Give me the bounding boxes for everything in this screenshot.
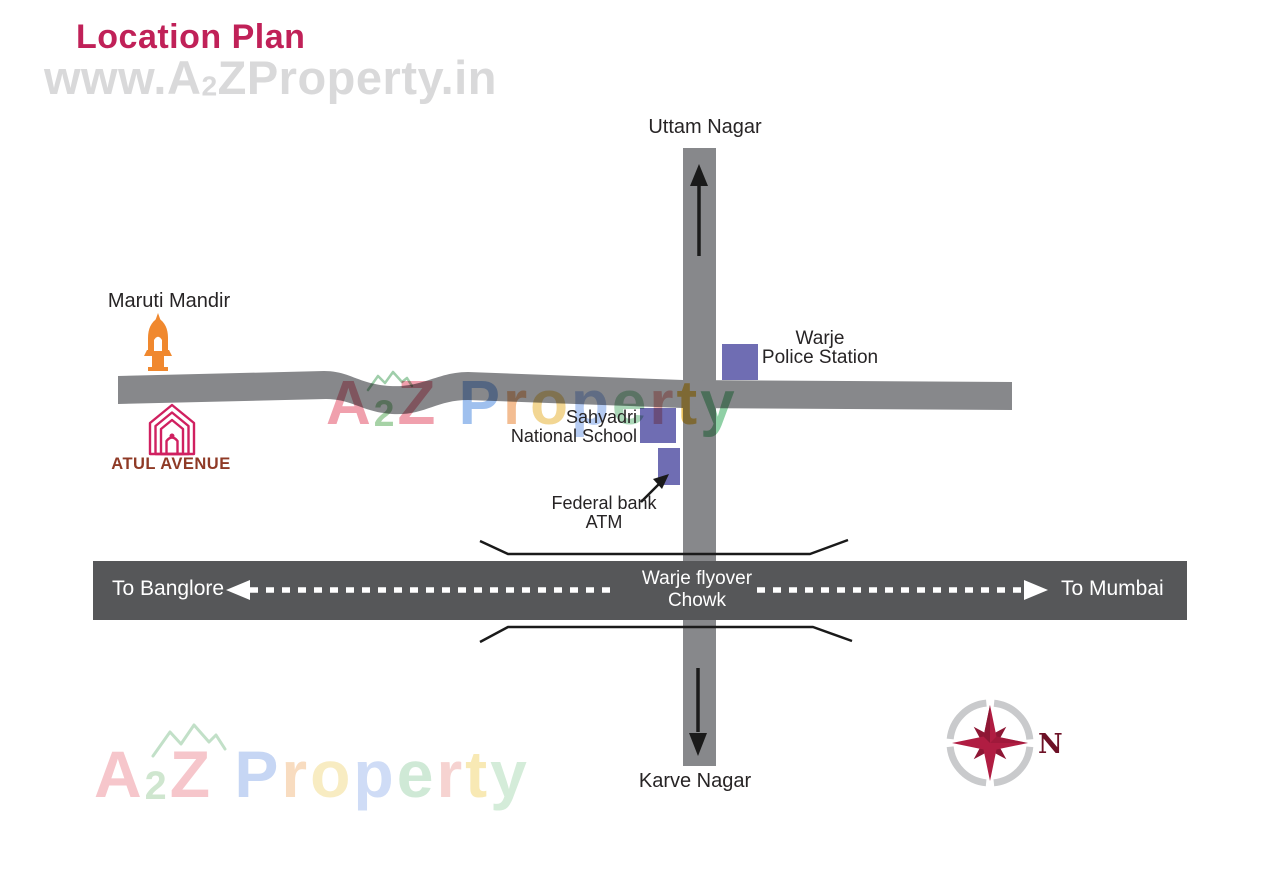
watermark-letter: r [281,737,310,811]
label-federal-line2: ATM [524,513,684,532]
label-school: Sahyadri National School [477,408,637,445]
watermark-letter: r [436,737,465,811]
watermark-letter: t [676,369,700,438]
label-to-banglore: To Banglore [112,577,224,601]
atul-avenue-icon [147,403,197,456]
watermark-letter: www.A [44,51,201,104]
label-atul-avenue: ATUL AVENUE [91,455,251,474]
watermark-letter: o [310,737,353,811]
watermark-letter: A [94,737,145,811]
watermark-letter: 2 [201,69,217,101]
watermark-letter: y [490,737,530,811]
flyover-bracket-top [480,540,848,554]
compass-north-label: N [1038,729,1063,760]
flyover-bracket-bottom [480,627,852,642]
label-federal-atm: Federal bank ATM [524,494,684,531]
logo-mountains-icon [366,370,414,392]
watermark-letter: t [465,737,490,811]
label-chowk-line1: Warje flyover [617,568,777,590]
compass-star-facet [984,705,991,743]
page-title: Location Plan [76,18,305,57]
label-federal-line1: Federal bank [524,494,684,513]
watermark-url: www.A2ZProperty.in [44,50,497,105]
temple-icon [142,313,174,373]
label-chowk-line2: Chowk [617,590,777,612]
label-school-line2: National School [477,427,637,446]
label-karve-nagar: Karve Nagar [595,770,795,793]
location-plan-canvas: Location Plan www.A2ZProperty.in A2Z Pro… [0,0,1280,895]
label-police-station: Warje Police Station [745,329,895,367]
watermark-letter: P [234,737,281,811]
watermark-letter: e [397,737,437,811]
watermark-letter: r [649,369,676,438]
logo-mountains-icon [150,722,228,760]
label-police-line2: Police Station [745,348,895,367]
label-uttam-nagar: Uttam Nagar [605,116,805,139]
watermark-letter [438,369,458,438]
label-police-line1: Warje [745,329,895,348]
compass-icon: N [938,696,1074,792]
watermark-letter: y [700,369,737,438]
compass-star-facet [990,737,1028,744]
label-to-mumbai: To Mumbai [1061,577,1164,601]
label-warje-flyover-chowk: Warje flyover Chowk [617,568,777,611]
watermark-letter: p [353,737,396,811]
label-maruti-mandir: Maruti Mandir [69,290,269,313]
label-school-line1: Sahyadri [477,408,637,427]
watermark-letter: 2 [374,392,398,434]
watermark-letter: 2 [145,764,170,808]
watermark-letter: ZProperty.in [218,51,497,104]
